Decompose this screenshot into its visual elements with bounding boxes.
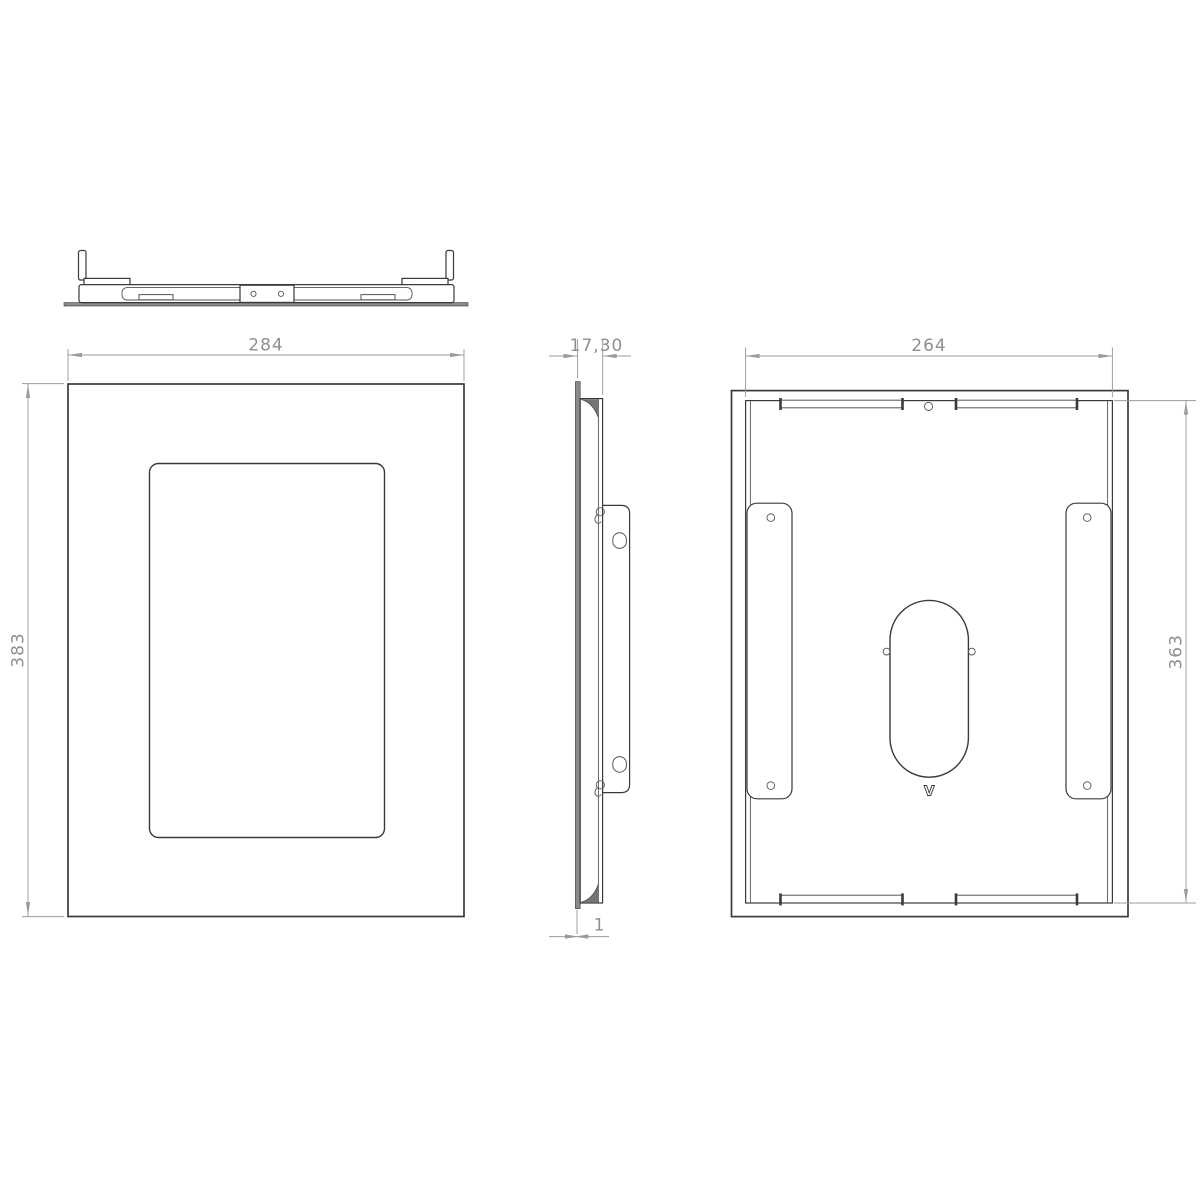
arrowhead bbox=[575, 934, 589, 938]
technical-drawing-page: 284 383 bbox=[0, 0, 1200, 1200]
top-right-vent-slot bbox=[956, 400, 1077, 408]
cable-access-cutout bbox=[890, 600, 968, 777]
dim-side-depth: 17,30 bbox=[549, 336, 631, 395]
front-view bbox=[68, 384, 464, 917]
right-slot-mark bbox=[361, 295, 395, 300]
bottom-left-vent-slot bbox=[781, 895, 903, 903]
screen-window-cutout bbox=[150, 464, 385, 838]
front-panel-section bbox=[575, 382, 580, 909]
arrowhead bbox=[1098, 354, 1112, 358]
bottom-right-vent-slot bbox=[956, 895, 1077, 903]
arrowhead bbox=[1184, 889, 1188, 903]
drawing-canvas: 284 383 bbox=[0, 0, 1200, 1200]
center-mount-plate bbox=[240, 285, 294, 302]
bracket-slot-bottom bbox=[613, 757, 627, 773]
arrowhead bbox=[746, 354, 760, 358]
arrowhead bbox=[26, 902, 30, 916]
front-height-label: 383 bbox=[9, 632, 29, 667]
top-width-label: 284 bbox=[248, 336, 283, 356]
brand-logo-mark: V bbox=[924, 784, 935, 800]
back-height-label: 363 bbox=[1167, 634, 1187, 669]
dim-panel-thickness: 1 bbox=[549, 910, 609, 939]
right-mount-rail bbox=[1066, 503, 1111, 799]
arrowhead bbox=[1184, 401, 1188, 415]
bracket-slot-top bbox=[613, 533, 627, 549]
left-mount-rail bbox=[747, 503, 792, 799]
right-retainer-prong bbox=[446, 251, 454, 281]
arrowhead bbox=[26, 384, 30, 398]
back-width-label: 264 bbox=[911, 336, 946, 356]
top-left-vent-slot bbox=[781, 400, 903, 408]
left-retainer-prong bbox=[79, 251, 87, 281]
side-view bbox=[575, 382, 629, 909]
dim-front-height: 383 bbox=[9, 384, 65, 917]
wall-bracket-profile bbox=[603, 505, 630, 792]
top-view bbox=[64, 251, 468, 307]
enclosure-profile bbox=[580, 399, 602, 903]
side-depth-label: 17,30 bbox=[570, 336, 624, 356]
panel-thickness-label: 1 bbox=[594, 916, 606, 936]
dim-top-width: 284 bbox=[68, 336, 464, 382]
dim-back-width: 264 bbox=[746, 336, 1113, 397]
arrowhead bbox=[68, 353, 82, 357]
back-view: V bbox=[732, 391, 1129, 917]
left-slot-mark bbox=[139, 295, 173, 300]
arrowhead bbox=[450, 353, 464, 357]
